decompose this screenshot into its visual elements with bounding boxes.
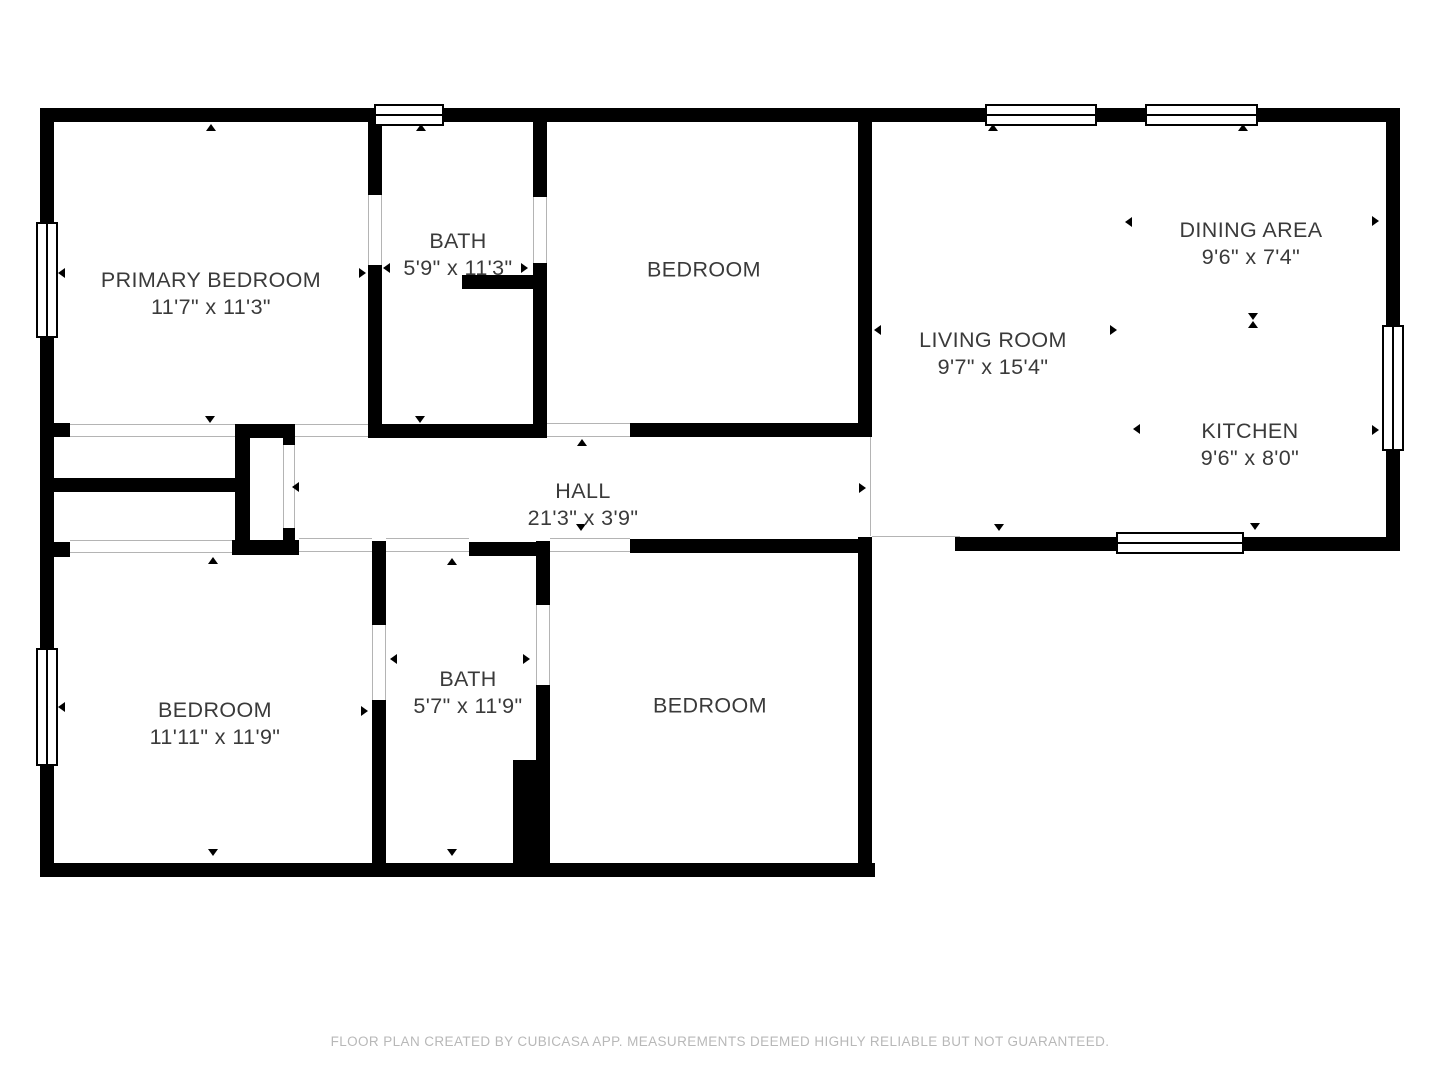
- measure-arrow-down: [208, 849, 218, 856]
- wall-primary-bath-lower: [368, 265, 382, 438]
- window-primary-left: [36, 222, 58, 338]
- opening-bedroom-bl-bath-door: [372, 625, 386, 700]
- measure-arrow-up: [1248, 321, 1258, 328]
- measure-arrow-left: [1125, 217, 1132, 227]
- wall-alcove-jamb-bottom: [283, 528, 295, 545]
- measure-arrow-up: [206, 124, 216, 131]
- opening-primary-door: [295, 424, 368, 437]
- wall-bedroom-bottom-right: [858, 537, 872, 877]
- measure-arrow-left: [383, 263, 390, 273]
- room-label-kitchen: KITCHEN 9'6" x 8'0": [1201, 418, 1299, 472]
- boundary-hall-living: [870, 437, 871, 536]
- room-dimensions: 21'3" x 3'9": [528, 505, 639, 532]
- measure-arrow-down: [994, 524, 1004, 531]
- measure-arrow-left: [58, 268, 65, 278]
- room-name: KITCHEN: [1201, 418, 1299, 445]
- wall-bedroom-top-south: [630, 423, 872, 437]
- measure-arrow-up: [577, 439, 587, 446]
- room-dimensions: 9'7" x 15'4": [919, 354, 1067, 381]
- window-bedroom-bl-left: [36, 648, 58, 766]
- opening-bath-bedroom-door: [533, 197, 547, 263]
- room-dimensions: 9'6" x 8'0": [1201, 445, 1299, 472]
- measure-arrow-right: [1372, 425, 1379, 435]
- measure-arrow-left: [874, 325, 881, 335]
- room-label-bath-bottom: BATH 5'7" x 11'9": [413, 666, 522, 720]
- measure-arrow-right: [1110, 325, 1117, 335]
- opening-bedroom-top-door: [547, 423, 630, 437]
- room-label-dining-area: DINING AREA 9'6" x 7'4": [1180, 217, 1323, 271]
- measure-arrow-right: [859, 483, 866, 493]
- room-label-primary-bedroom: PRIMARY BEDROOM 11'7" x 11'3": [101, 267, 321, 321]
- opening-primary-closet: [70, 424, 235, 437]
- room-dimensions: 5'7" x 11'9": [413, 693, 522, 720]
- measure-arrow-right: [359, 268, 366, 278]
- footer-disclaimer: FLOOR PLAN CREATED BY CUBICASA APP. MEAS…: [331, 1034, 1110, 1049]
- measure-arrow-left: [1133, 424, 1140, 434]
- wall-bath-bottom-north: [469, 542, 550, 556]
- wall-bath-bedroom-upper: [533, 122, 547, 197]
- opening-bedroom-bottom-door: [550, 538, 630, 552]
- room-name: BEDROOM: [653, 693, 767, 720]
- measure-arrow-left: [292, 482, 299, 492]
- measure-arrow-up: [447, 558, 457, 565]
- room-name: BEDROOM: [150, 697, 281, 724]
- room-dimensions: 11'11" x 11'9": [150, 724, 281, 751]
- wall-bedroom-bottom-north: [630, 539, 872, 553]
- measure-arrow-down: [1248, 313, 1258, 320]
- room-name: HALL: [528, 478, 639, 505]
- opening-bedroom-bottom-left-door: [536, 605, 550, 685]
- wall-bath-top-south: [368, 424, 547, 438]
- opening-bath-bottom-door: [386, 538, 469, 552]
- wall-primary-south-stub: [54, 423, 70, 437]
- wall-exterior-bottom: [40, 863, 875, 877]
- room-name: BATH: [403, 228, 512, 255]
- wall-bedroom-bath-bl-lower: [372, 700, 386, 863]
- window-living-top: [985, 104, 1097, 126]
- room-label-bedroom-bottom: BEDROOM: [653, 693, 767, 720]
- window-kitchen-right: [1382, 325, 1404, 451]
- measure-arrow-up: [416, 124, 426, 131]
- measure-arrow-up: [1238, 124, 1248, 131]
- room-dimensions: 11'7" x 11'3": [101, 294, 321, 321]
- wall-bath-bedroom-lower: [533, 263, 547, 437]
- window-kitchen-bottom: [1116, 532, 1244, 554]
- room-label-hall: HALL 21'3" x 3'9": [528, 478, 639, 532]
- room-dimensions: 9'6" x 7'4": [1180, 244, 1323, 271]
- room-label-living-room: LIVING ROOM 9'7" x 15'4": [919, 327, 1067, 381]
- measure-arrow-down: [1250, 523, 1260, 530]
- window-bath-top: [374, 104, 444, 126]
- wall-closet-middle: [40, 478, 250, 492]
- wall-bedroom-bath-bl-upper: [372, 541, 386, 625]
- measure-arrow-down: [447, 849, 457, 856]
- measure-arrow-down: [415, 416, 425, 423]
- room-dimensions: 5'9" x 11'3": [403, 255, 512, 282]
- opening-closet-bedroom-bl: [70, 540, 232, 553]
- measure-arrow-up: [208, 557, 218, 564]
- wall-plumbing-block: [513, 760, 536, 863]
- measure-arrow-up: [988, 124, 998, 131]
- wall-bath-bedroom-bottom-lower: [536, 685, 550, 863]
- wall-alcove-jamb-top: [283, 426, 295, 445]
- room-label-bedroom-bottom-left: BEDROOM 11'11" x 11'9": [150, 697, 281, 751]
- window-dining-top: [1145, 104, 1258, 126]
- measure-arrow-right: [361, 706, 368, 716]
- boundary-living-open-edge: [872, 536, 960, 537]
- measure-arrow-right: [521, 263, 528, 273]
- room-name: LIVING ROOM: [919, 327, 1067, 354]
- measure-arrow-down: [205, 416, 215, 423]
- wall-primary-bath-upper: [368, 122, 382, 195]
- measure-arrow-left: [58, 702, 65, 712]
- measure-arrow-right: [523, 654, 530, 664]
- opening-primary-bath-door: [368, 195, 382, 265]
- room-name: BATH: [413, 666, 522, 693]
- measure-arrow-right: [1372, 216, 1379, 226]
- floor-plan-canvas: PRIMARY BEDROOM 11'7" x 11'3" BATH 5'9" …: [0, 0, 1440, 1080]
- wall-hall-left-stub: [54, 542, 70, 557]
- room-label-bath-top: BATH 5'9" x 11'3": [403, 228, 512, 282]
- room-name: BEDROOM: [647, 257, 761, 284]
- measure-arrow-left: [390, 654, 397, 664]
- wall-bedroom-top-right: [858, 122, 872, 437]
- room-name: DINING AREA: [1180, 217, 1323, 244]
- room-label-bedroom-top: BEDROOM: [647, 257, 761, 284]
- room-name: PRIMARY BEDROOM: [101, 267, 321, 294]
- opening-bedroom-bl-door: [299, 538, 372, 552]
